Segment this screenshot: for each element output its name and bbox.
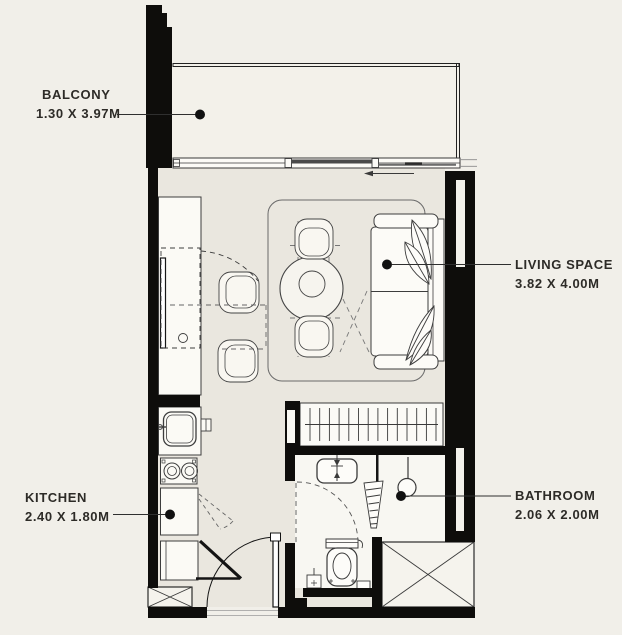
balcony-room-dims: 1.30 X 3.97M (36, 104, 121, 123)
wall-balcony-west (146, 5, 172, 168)
wall-wardrobe-south (285, 446, 475, 455)
balcony-leader-dot (195, 110, 205, 120)
wall-shaft-divider (372, 537, 382, 607)
toilet (326, 539, 363, 586)
service-shaft (382, 542, 474, 607)
sliding-panel (292, 160, 372, 164)
dining-chair-south (295, 316, 333, 357)
band-mullion-1 (285, 159, 292, 168)
wall-bathroom-west-upper (285, 455, 295, 481)
balcony-floor (172, 64, 459, 160)
wall-recess-1 (456, 180, 465, 267)
kitchen-room-dims: 2.40 X 1.80M (25, 507, 110, 526)
sofa-armrest-bottom (374, 355, 438, 369)
vanity-sink (317, 455, 357, 483)
dining-table (280, 257, 343, 320)
kitchen-label: KITCHEN 2.40 X 1.80M (25, 488, 110, 526)
wall-south-left (148, 607, 207, 618)
sink-counter (159, 407, 202, 455)
bathroom-room-name: BATHROOM (515, 486, 600, 505)
wall-south-right (278, 607, 475, 618)
wall-toilet-back (303, 588, 378, 597)
dining-chair-north (295, 219, 333, 259)
floor-plan-canvas: BALCONY 1.30 X 3.97M LIVING SPACE 3.82 X… (0, 0, 622, 635)
kitchen-leader-dot (165, 510, 175, 520)
bathroom-label: BATHROOM 2.06 X 2.00M (515, 486, 600, 524)
door-leaf (273, 537, 279, 607)
living-space-label: LIVING SPACE 3.82 X 4.00M (515, 255, 613, 293)
bathroom-leader-dot (396, 491, 406, 501)
living-room-dims: 3.82 X 4.00M (515, 274, 613, 293)
band-mullion-2 (372, 159, 379, 168)
living-leader-dot (382, 260, 392, 270)
wall-recess-2 (456, 448, 464, 531)
wardrobe-wall-recess (287, 410, 295, 443)
wall-west (148, 168, 158, 588)
shower-glass (376, 455, 379, 483)
bar-stool-south (218, 340, 258, 382)
stove (161, 458, 198, 484)
kitchen-room-name: KITCHEN (25, 488, 110, 507)
balcony-room-name: BALCONY (42, 85, 121, 104)
sofa-armrest-top (374, 214, 438, 228)
wardrobe (300, 403, 443, 446)
balcony-label: BALCONY 1.30 X 3.97M (36, 85, 121, 123)
bathroom-room-dims: 2.06 X 2.00M (515, 505, 600, 524)
left-shaft (148, 587, 192, 607)
wall-bathroom-west-lower (285, 543, 295, 607)
bar-stool-north (219, 272, 259, 313)
living-room-name: LIVING SPACE (515, 255, 613, 274)
sofa (371, 214, 444, 369)
wall-kitchen-divider (148, 395, 200, 407)
